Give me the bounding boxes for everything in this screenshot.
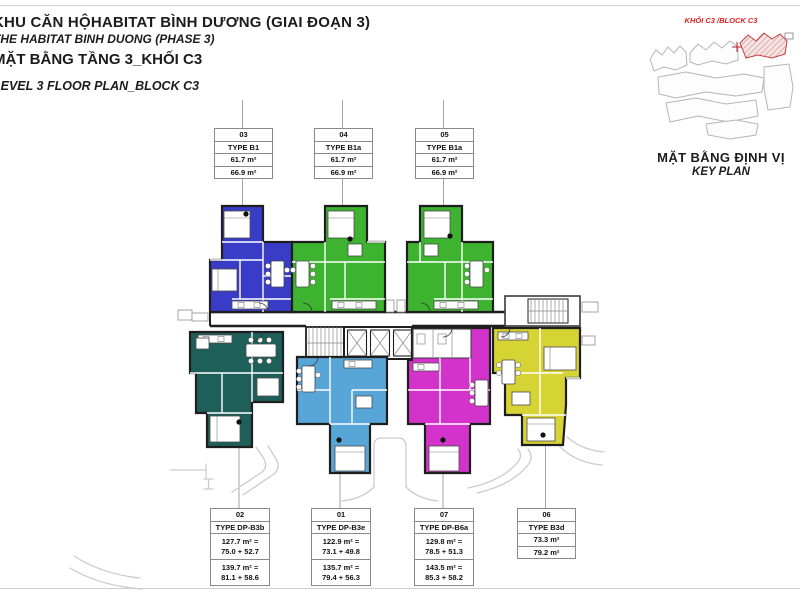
unit-number: 05 (416, 129, 473, 141)
dining-table (469, 380, 488, 406)
bed (328, 211, 354, 238)
floor-plan-sheet: KHU CĂN HỘHABITAT BÌNH DƯƠNG (GIAI ĐOẠN … (0, 0, 800, 600)
kitchen-counter (232, 301, 268, 309)
unit-area-gross: 135.7 m² =79.4 + 56.3 (312, 559, 370, 585)
unit-area-net: 61.7 m² (215, 153, 272, 166)
floor-plan-drawing (0, 0, 800, 600)
bathroom-fixture (348, 244, 362, 256)
bed (544, 347, 576, 370)
unit-type: TYPE DP-B3b (211, 521, 269, 534)
bed (212, 269, 237, 291)
unit-area-net: 61.7 m² (315, 153, 372, 166)
unit-type: TYPE B1a (315, 141, 372, 154)
unit-number: 07 (415, 509, 473, 521)
unit-area-net: 122.9 m² =73.1 + 49.8 (312, 533, 370, 559)
unit-type: TYPE B1a (416, 141, 473, 154)
unit-area-gross: 143.5 m² =85.3 + 58.2 (415, 559, 473, 585)
dining-table (246, 337, 276, 363)
unit-number: 02 (211, 509, 269, 521)
unit-type: TYPE B3d (518, 521, 575, 534)
vent-dot (447, 233, 452, 238)
kitchen-counter (413, 363, 439, 371)
kitchen-counter (434, 301, 478, 309)
bed (527, 418, 555, 441)
unit-05-plan (407, 206, 493, 312)
unit-02-plan (190, 332, 283, 447)
unit-area-gross: 139.7 m² =81.1 + 58.6 (211, 559, 269, 585)
elevator-bank (344, 327, 414, 359)
vent-dot (236, 419, 241, 424)
bathroom-fixture (424, 244, 438, 256)
bathrooms (413, 329, 471, 358)
unit-05-label-box: 05 TYPE B1a 61.7 m² 66.9 m² (415, 128, 474, 179)
stair-left (306, 327, 344, 359)
sofa (257, 378, 279, 396)
vent-dot (440, 437, 445, 442)
stair-right (505, 296, 580, 326)
unit-03-plan (210, 206, 292, 312)
unit-07-plan (408, 328, 490, 473)
bed (210, 416, 240, 442)
unit-number: 06 (518, 509, 575, 521)
unit-number: 03 (215, 129, 272, 141)
unit-type: TYPE DP-B6a (415, 521, 473, 534)
unit-area-gross: 79.2 m² (518, 546, 575, 559)
unit-area-net: 61.7 m² (416, 153, 473, 166)
unit-type: TYPE B1 (215, 141, 272, 154)
unit-02-label-box: 02 TYPE DP-B3b 127.7 m² =75.0 + 52.7 139… (210, 508, 270, 586)
unit-area-net: 129.8 m² =78.5 + 51.3 (415, 533, 473, 559)
kitchen-counter (498, 332, 528, 340)
kitchen-counter (332, 301, 376, 309)
unit-03-label-box: 03 TYPE B1 61.7 m² 66.9 m² (214, 128, 273, 179)
vent-dot (243, 211, 248, 216)
unit-area-gross: 66.9 m² (215, 166, 272, 179)
unit-type: TYPE DP-B3e (312, 521, 370, 534)
vent-dot (336, 437, 341, 442)
unit-07-label-box: 07 TYPE DP-B6a 129.8 m² =78.5 + 51.3 143… (414, 508, 474, 586)
sofa (512, 392, 530, 405)
bed (424, 211, 450, 238)
unit-number: 04 (315, 129, 372, 141)
unit-area-net: 127.7 m² =75.0 + 52.7 (211, 533, 269, 559)
vent-dot (347, 236, 352, 241)
unit-06-plan (493, 328, 580, 445)
bed (429, 446, 459, 471)
unit-04-label-box: 04 TYPE B1a 61.7 m² 66.9 m² (314, 128, 373, 179)
kitchen-counter (344, 360, 372, 368)
bathroom-fixture (356, 396, 372, 408)
bed (335, 446, 365, 471)
unit-01-label-box: 01 TYPE DP-B3e 122.9 m² =73.1 + 49.8 135… (311, 508, 371, 586)
unit-area-gross: 66.9 m² (416, 166, 473, 179)
vent-dot (540, 432, 545, 437)
unit-area-gross: 66.9 m² (315, 166, 372, 179)
unit-number: 01 (312, 509, 370, 521)
unit-04-plan (290, 206, 385, 312)
bathroom-fixture (196, 338, 209, 349)
unit-area-net: 73.3 m² (518, 533, 575, 546)
unit-06-label-box: 06 TYPE B3d 73.3 m² 79.2 m² (517, 508, 576, 559)
